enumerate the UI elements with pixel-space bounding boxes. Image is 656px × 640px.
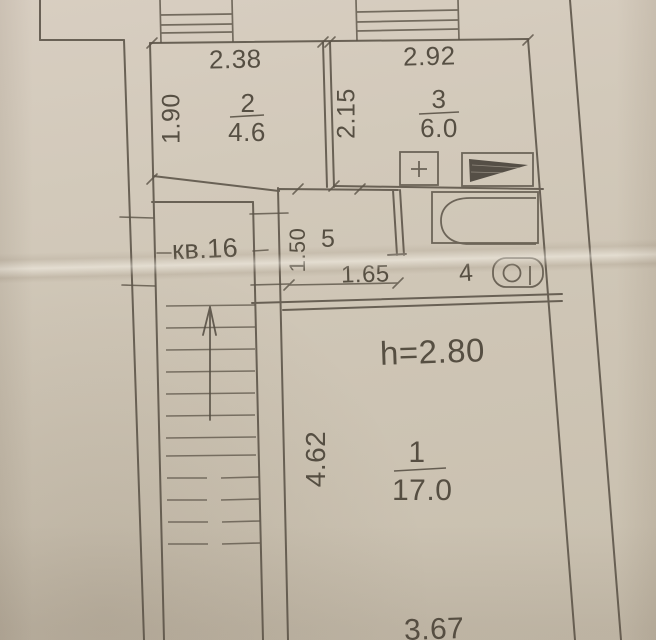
apartment-label: кв.16 bbox=[171, 235, 238, 265]
floorplan-photo: 2.38 1.90 2 4.6 2.92 2.15 3 6.0 кв.16 1.… bbox=[0, 0, 656, 640]
ventilation-shaft-icon bbox=[462, 153, 533, 186]
room2-area: 4.6 bbox=[226, 119, 268, 145]
room2-number: 2 bbox=[233, 90, 263, 116]
room3-number: 3 bbox=[422, 86, 456, 112]
room5-depth-dimension: 1.50 bbox=[287, 224, 309, 276]
room3-area: 6.0 bbox=[416, 115, 462, 141]
stairs-icon bbox=[166, 305, 260, 544]
window-icon-right bbox=[356, 0, 459, 41]
room5-width-dimension: 1.65 bbox=[341, 262, 390, 287]
fraction-underlines bbox=[230, 112, 459, 471]
floorplan-drawing bbox=[0, 0, 656, 640]
room1-number: 1 bbox=[400, 438, 434, 468]
direction-arrow-icon bbox=[203, 307, 216, 420]
stove-icon bbox=[400, 152, 438, 185]
room1-width-dimension: 3.67 bbox=[403, 614, 464, 640]
room1-area: 17.0 bbox=[392, 476, 448, 506]
room2-depth-dimension: 1.90 bbox=[160, 91, 185, 147]
room2-width-dimension: 2.38 bbox=[209, 46, 262, 73]
window-icon-left bbox=[160, 0, 233, 43]
room3-depth-dimension: 2.15 bbox=[335, 86, 360, 142]
room3-width-dimension: 2.92 bbox=[403, 42, 456, 69]
room1-depth-dimension: 4.62 bbox=[302, 429, 330, 489]
bathtub-icon bbox=[432, 192, 538, 244]
room5-number: 5 bbox=[321, 227, 335, 252]
room4-number: 4 bbox=[458, 261, 474, 287]
ceiling-height-note: h=2.80 bbox=[379, 333, 485, 370]
toilet-icon bbox=[493, 258, 543, 287]
walls bbox=[40, 0, 621, 640]
